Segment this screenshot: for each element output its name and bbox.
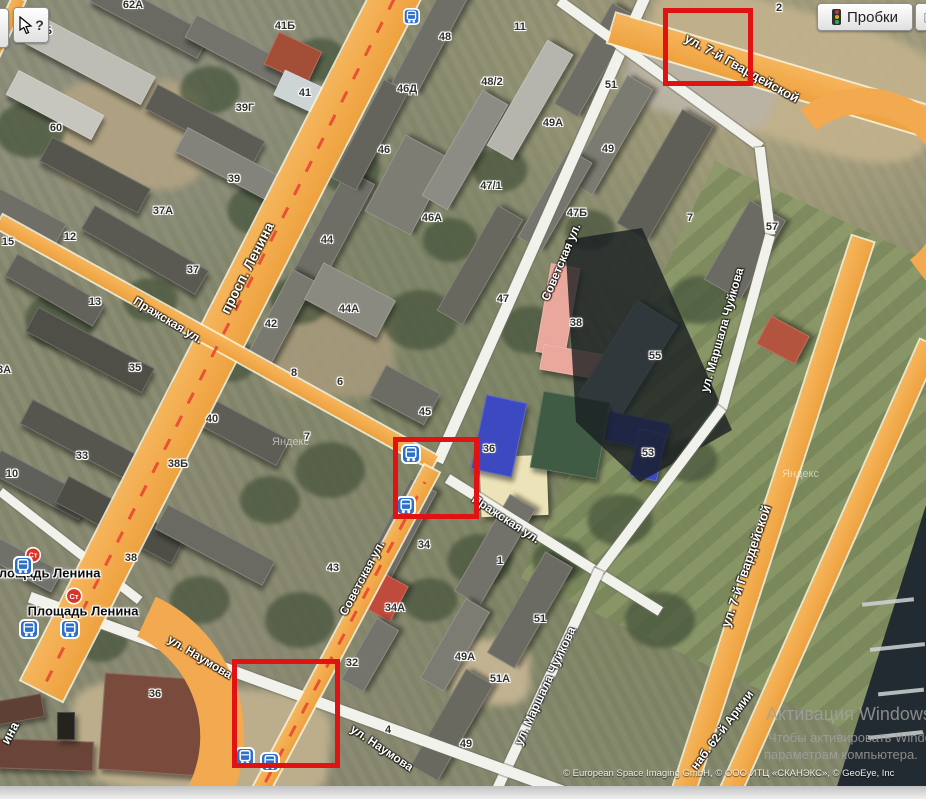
building-number: 4 bbox=[385, 724, 391, 736]
building-number: 33 bbox=[76, 450, 88, 462]
transit-stop-icon[interactable] bbox=[13, 556, 33, 576]
yandex-watermark: Яндекс bbox=[782, 468, 819, 480]
tree-cluster bbox=[403, 578, 458, 622]
transit-stop-icon[interactable] bbox=[19, 619, 39, 639]
map-attribution: © European Space Imaging GmbH, © ООО ИТЦ… bbox=[563, 768, 894, 779]
building-number: 51 bbox=[605, 79, 617, 91]
building-number: 55 bbox=[649, 350, 661, 362]
building-number: 38 bbox=[570, 317, 582, 329]
building-number: 47Б bbox=[567, 207, 587, 219]
building-number: 34 bbox=[418, 539, 430, 551]
building-number: 38 bbox=[125, 552, 137, 564]
building-number: 51 bbox=[534, 613, 546, 625]
building-number: 15 bbox=[2, 236, 14, 248]
building-number: 2 bbox=[776, 2, 782, 14]
inspect-tool-button[interactable]: ? bbox=[13, 7, 49, 43]
map-tool-button-partial[interactable] bbox=[0, 8, 9, 48]
transit-stop-icon[interactable] bbox=[403, 8, 420, 25]
panorama-button-partial[interactable]: ◫ bbox=[915, 3, 926, 31]
station-label: Площадь Ленина bbox=[28, 604, 139, 619]
window-bottom-edge bbox=[0, 786, 926, 799]
building-number: 45 bbox=[419, 406, 431, 418]
windows-activation-watermark: Чтобы активировать Windows, перейдите к bbox=[768, 730, 926, 745]
building-number: 48 bbox=[439, 31, 451, 43]
building-number: 60 bbox=[50, 122, 62, 134]
building-number: 42 bbox=[265, 318, 277, 330]
building-number: 53 bbox=[642, 447, 654, 459]
building-number: 40 bbox=[206, 413, 218, 425]
building-number: 62А bbox=[123, 0, 143, 11]
building-number: 34А bbox=[385, 602, 405, 614]
svg-text:Ст: Ст bbox=[69, 592, 79, 601]
building-number: 39Г bbox=[236, 102, 254, 114]
map-canvas[interactable]: ул. 7-й Гвардейскойпросп. ЛенинаПражская… bbox=[0, 0, 926, 799]
building-number: 1 bbox=[497, 555, 503, 567]
building-number: 36 bbox=[149, 688, 161, 700]
metrotram-station-icon[interactable]: Ст bbox=[65, 587, 83, 605]
traffic-button-label: Пробки bbox=[847, 9, 898, 26]
building-number: 41Б bbox=[275, 20, 295, 32]
building-number: 6 bbox=[337, 376, 343, 388]
annotation-rect bbox=[663, 8, 753, 86]
building-number: 44 bbox=[321, 234, 333, 246]
building-number: 44А bbox=[339, 303, 359, 315]
building-number: 11 bbox=[514, 21, 526, 33]
building-number: 47/1 bbox=[480, 180, 501, 192]
building-number: 38Б bbox=[168, 458, 188, 470]
transit-stop-icon[interactable] bbox=[60, 619, 80, 639]
annotation-rect bbox=[232, 659, 340, 768]
tree-cluster bbox=[240, 476, 300, 524]
windows-activation-watermark: Активация Windows bbox=[766, 704, 926, 725]
building-number: 46А bbox=[422, 212, 442, 224]
building-number: 47 bbox=[497, 293, 509, 305]
building-number: 37 bbox=[187, 264, 199, 276]
traffic-light-icon bbox=[832, 9, 841, 25]
building-number: 10 bbox=[6, 468, 18, 480]
windows-activation-watermark: параметрам компьютера. bbox=[764, 747, 918, 762]
building-number: 51А bbox=[490, 673, 510, 685]
building-number: 46 bbox=[378, 144, 390, 156]
building-number: 3А bbox=[0, 364, 11, 376]
building-number: 12 bbox=[64, 231, 76, 243]
building-number: 37А bbox=[153, 205, 173, 217]
building-number: 35 bbox=[129, 362, 141, 374]
building-number: 49 bbox=[460, 738, 472, 750]
building-number: 8 bbox=[291, 367, 297, 379]
cursor-icon bbox=[18, 16, 34, 34]
building-number: 41 bbox=[299, 87, 311, 99]
building-number: 49А bbox=[543, 117, 563, 129]
tree-cluster bbox=[265, 592, 335, 648]
building-number: 43 bbox=[327, 562, 339, 574]
traffic-button[interactable]: Пробки bbox=[817, 3, 913, 31]
building-number: 57 bbox=[766, 221, 778, 233]
tree-cluster bbox=[295, 442, 365, 498]
building-number: 48/2 bbox=[481, 76, 502, 88]
building-number: 46Д bbox=[397, 83, 417, 95]
question-mark: ? bbox=[35, 17, 44, 33]
yandex-watermark: Яндекс bbox=[272, 436, 309, 448]
building bbox=[530, 391, 611, 480]
building-number: 39 bbox=[228, 173, 240, 185]
building-number: 13 bbox=[89, 296, 101, 308]
building-number: 7 bbox=[687, 212, 693, 224]
building-number: 49А bbox=[455, 651, 475, 663]
building-number: 32 bbox=[346, 657, 358, 669]
annotation-rect bbox=[393, 437, 479, 519]
building-number: 36 bbox=[483, 443, 495, 455]
building-number: 49 bbox=[602, 143, 614, 155]
